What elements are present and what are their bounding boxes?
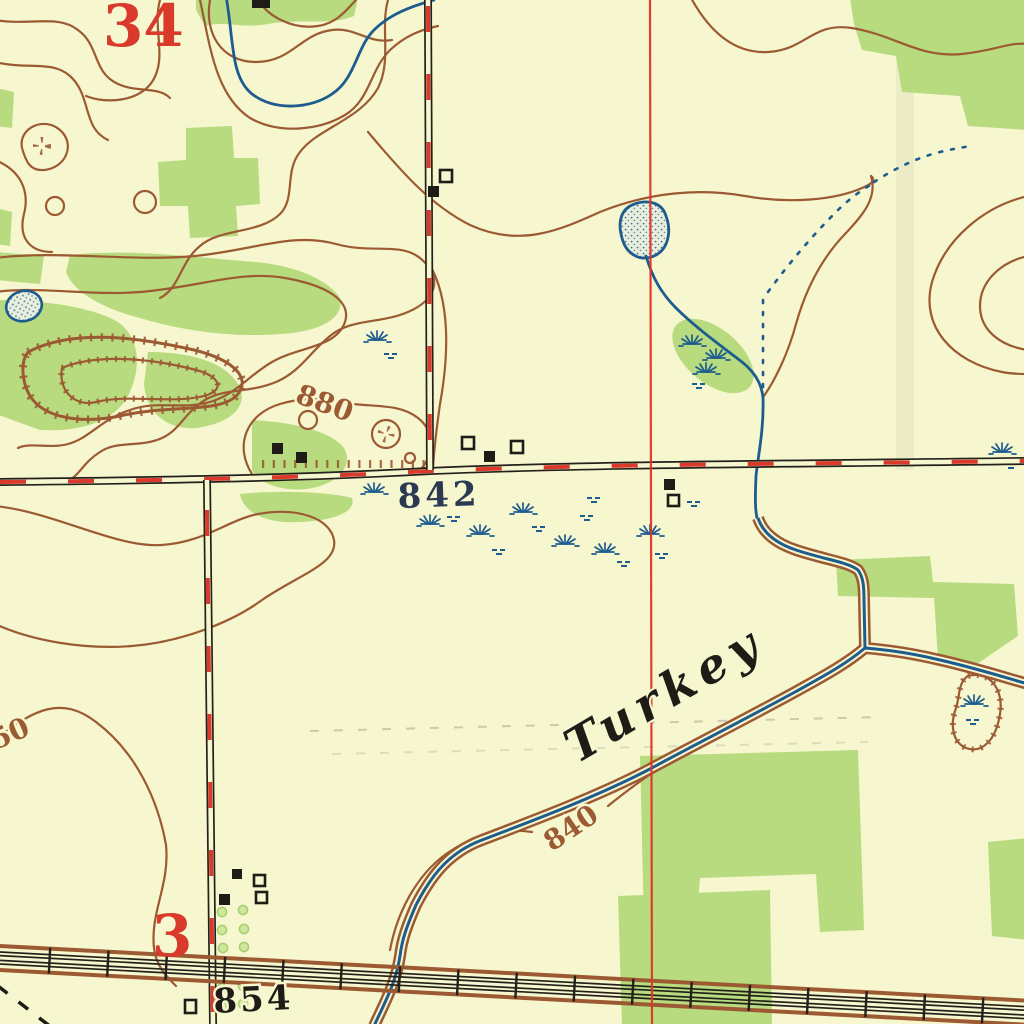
spot-elevation-842: 842 <box>397 474 481 517</box>
pond-intermittent-center <box>620 202 669 258</box>
spot-elevation-854: 854 <box>212 978 294 1022</box>
paper-background <box>0 0 1024 1024</box>
road-north <box>428 0 430 470</box>
topo-map: 34 3 880 840 50 842 854 Turkey <box>0 0 1024 1024</box>
section-number-3: 3 <box>152 902 192 970</box>
topo-map-viewport: 34 3 880 840 50 842 854 Turkey <box>0 0 1024 1024</box>
section-number-34: 34 <box>103 0 184 60</box>
